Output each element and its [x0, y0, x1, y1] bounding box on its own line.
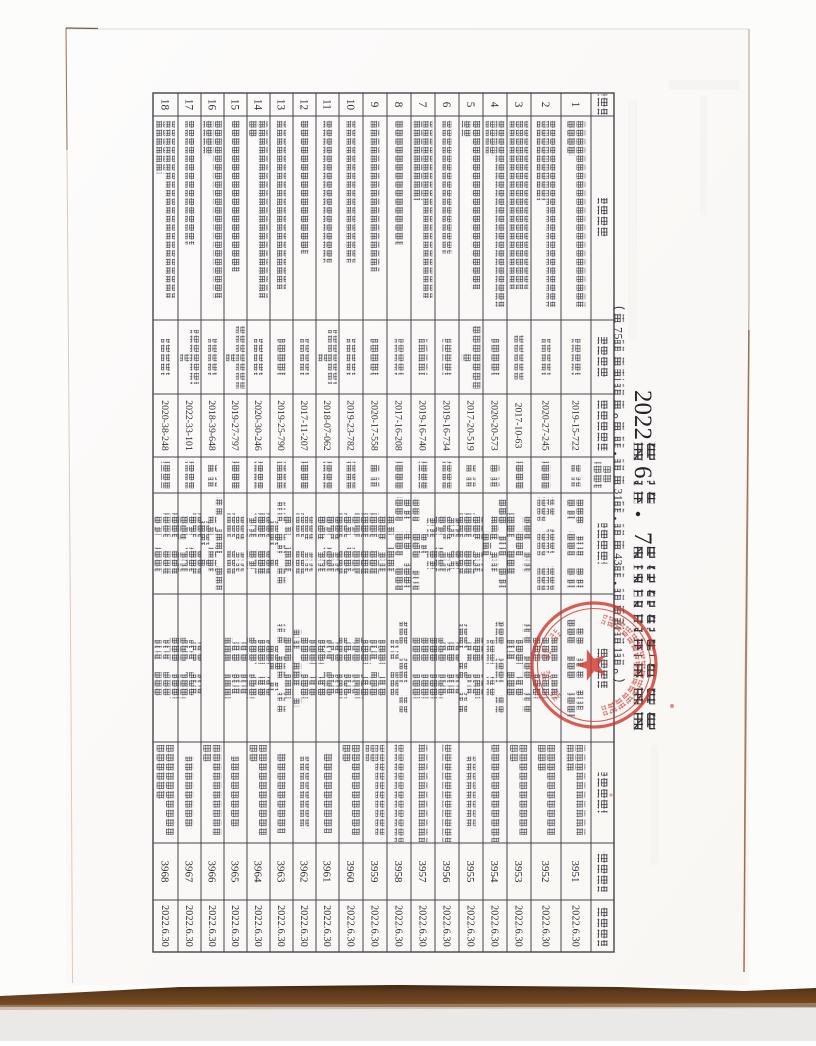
svg-text:5: 5	[464, 102, 476, 108]
svg-text:6: 6	[629, 466, 656, 479]
svg-text:2022.6.30: 2022.6.30	[441, 905, 452, 947]
svg-text:6: 6	[440, 102, 452, 108]
svg-text:2022.6.30: 2022.6.30	[570, 905, 581, 947]
svg-text:2020-20-573: 2020-20-573	[489, 400, 500, 451]
svg-text:3958: 3958	[392, 861, 404, 884]
svg-text:8: 8	[392, 102, 404, 108]
svg-text:2020-38-248: 2020-38-248	[159, 400, 170, 451]
svg-text:2022.6.30: 2022.6.30	[183, 905, 194, 947]
svg-text:3956: 3956	[440, 861, 452, 884]
svg-text:2022.6.30: 2022.6.30	[159, 905, 170, 947]
svg-text:3967: 3967	[183, 861, 195, 884]
svg-text:2017-11-207: 2017-11-207	[298, 400, 309, 450]
svg-text:7: 7	[416, 102, 428, 108]
svg-text:2022.6.30: 2022.6.30	[275, 905, 286, 947]
svg-text:2017-10-63: 2017-10-63	[513, 403, 524, 449]
svg-text:12: 12	[298, 99, 310, 110]
svg-text:3968: 3968	[159, 861, 171, 884]
svg-text:18: 18	[159, 99, 171, 111]
svg-text:9: 9	[368, 102, 380, 108]
svg-text:17: 17	[183, 99, 195, 111]
svg-text:2022-33-101: 2022-33-101	[183, 400, 194, 451]
svg-text:2020-30-246: 2020-30-246	[252, 400, 263, 451]
svg-text:2022.6.30: 2022.6.30	[393, 905, 404, 947]
svg-text:3966: 3966	[206, 861, 218, 884]
svg-text:3: 3	[512, 102, 524, 108]
svg-text:2022.6.30: 2022.6.30	[513, 905, 524, 947]
svg-text:2022.6.30: 2022.6.30	[417, 905, 428, 947]
svg-text:2018-07-062: 2018-07-062	[321, 400, 332, 451]
svg-text:3953: 3953	[512, 861, 524, 884]
svg-text:3962: 3962	[298, 861, 310, 883]
svg-text:3964: 3964	[252, 861, 264, 884]
svg-text:3954: 3954	[488, 861, 500, 884]
svg-text:14: 14	[252, 99, 264, 111]
svg-text:2022.6.30: 2022.6.30	[345, 905, 356, 947]
svg-text:2019-23-782: 2019-23-782	[345, 400, 356, 451]
svg-text:2019-16-734: 2019-16-734	[441, 400, 452, 451]
svg-text:2019-25-790: 2019-25-790	[275, 400, 286, 451]
svg-text:3957: 3957	[416, 861, 428, 884]
svg-text:2022: 2022	[629, 390, 656, 440]
svg-text:2022.6.30: 2022.6.30	[206, 905, 217, 947]
svg-text:3960: 3960	[344, 861, 356, 884]
svg-text:11: 11	[321, 99, 333, 110]
svg-text:3951: 3951	[569, 861, 581, 883]
svg-text:3965: 3965	[229, 861, 241, 884]
svg-text:3961: 3961	[321, 861, 333, 883]
svg-text:15: 15	[229, 99, 241, 111]
svg-text:16: 16	[206, 99, 218, 111]
svg-text:2022.6.30: 2022.6.30	[229, 905, 240, 947]
svg-text:2019-27-797: 2019-27-797	[229, 400, 240, 451]
svg-text:2022.6.30: 2022.6.30	[540, 905, 551, 947]
svg-text:2019-15-722: 2019-15-722	[570, 400, 581, 451]
svg-text:2017-16-208: 2017-16-208	[393, 400, 404, 451]
svg-text:2022.6.30: 2022.6.30	[489, 905, 500, 947]
svg-text:2022.6.30: 2022.6.30	[252, 905, 263, 947]
svg-text:3952: 3952	[539, 861, 551, 883]
svg-text:3955: 3955	[464, 861, 476, 884]
svg-text:2: 2	[539, 102, 551, 108]
svg-text:2019-16-740: 2019-16-740	[417, 400, 428, 451]
svg-text:2018-39-648: 2018-39-648	[206, 400, 217, 451]
svg-text:4: 4	[488, 102, 500, 108]
svg-text:3963: 3963	[275, 861, 287, 884]
svg-text:13: 13	[275, 99, 287, 111]
svg-text:7: 7	[629, 532, 656, 545]
svg-text:2020-17-558: 2020-17-558	[369, 400, 380, 451]
svg-text:2022.6.30: 2022.6.30	[369, 905, 380, 947]
svg-text:1: 1	[569, 102, 581, 108]
svg-text:2017-20-519: 2017-20-519	[465, 400, 476, 451]
svg-text:2022.6.30: 2022.6.30	[321, 905, 332, 947]
svg-text:3959: 3959	[368, 861, 380, 884]
svg-text:10: 10	[344, 99, 356, 111]
svg-text:2022.6.30: 2022.6.30	[298, 905, 309, 947]
svg-text:2022.6.30: 2022.6.30	[465, 905, 476, 947]
svg-text:2020-27-245: 2020-27-245	[540, 400, 551, 451]
